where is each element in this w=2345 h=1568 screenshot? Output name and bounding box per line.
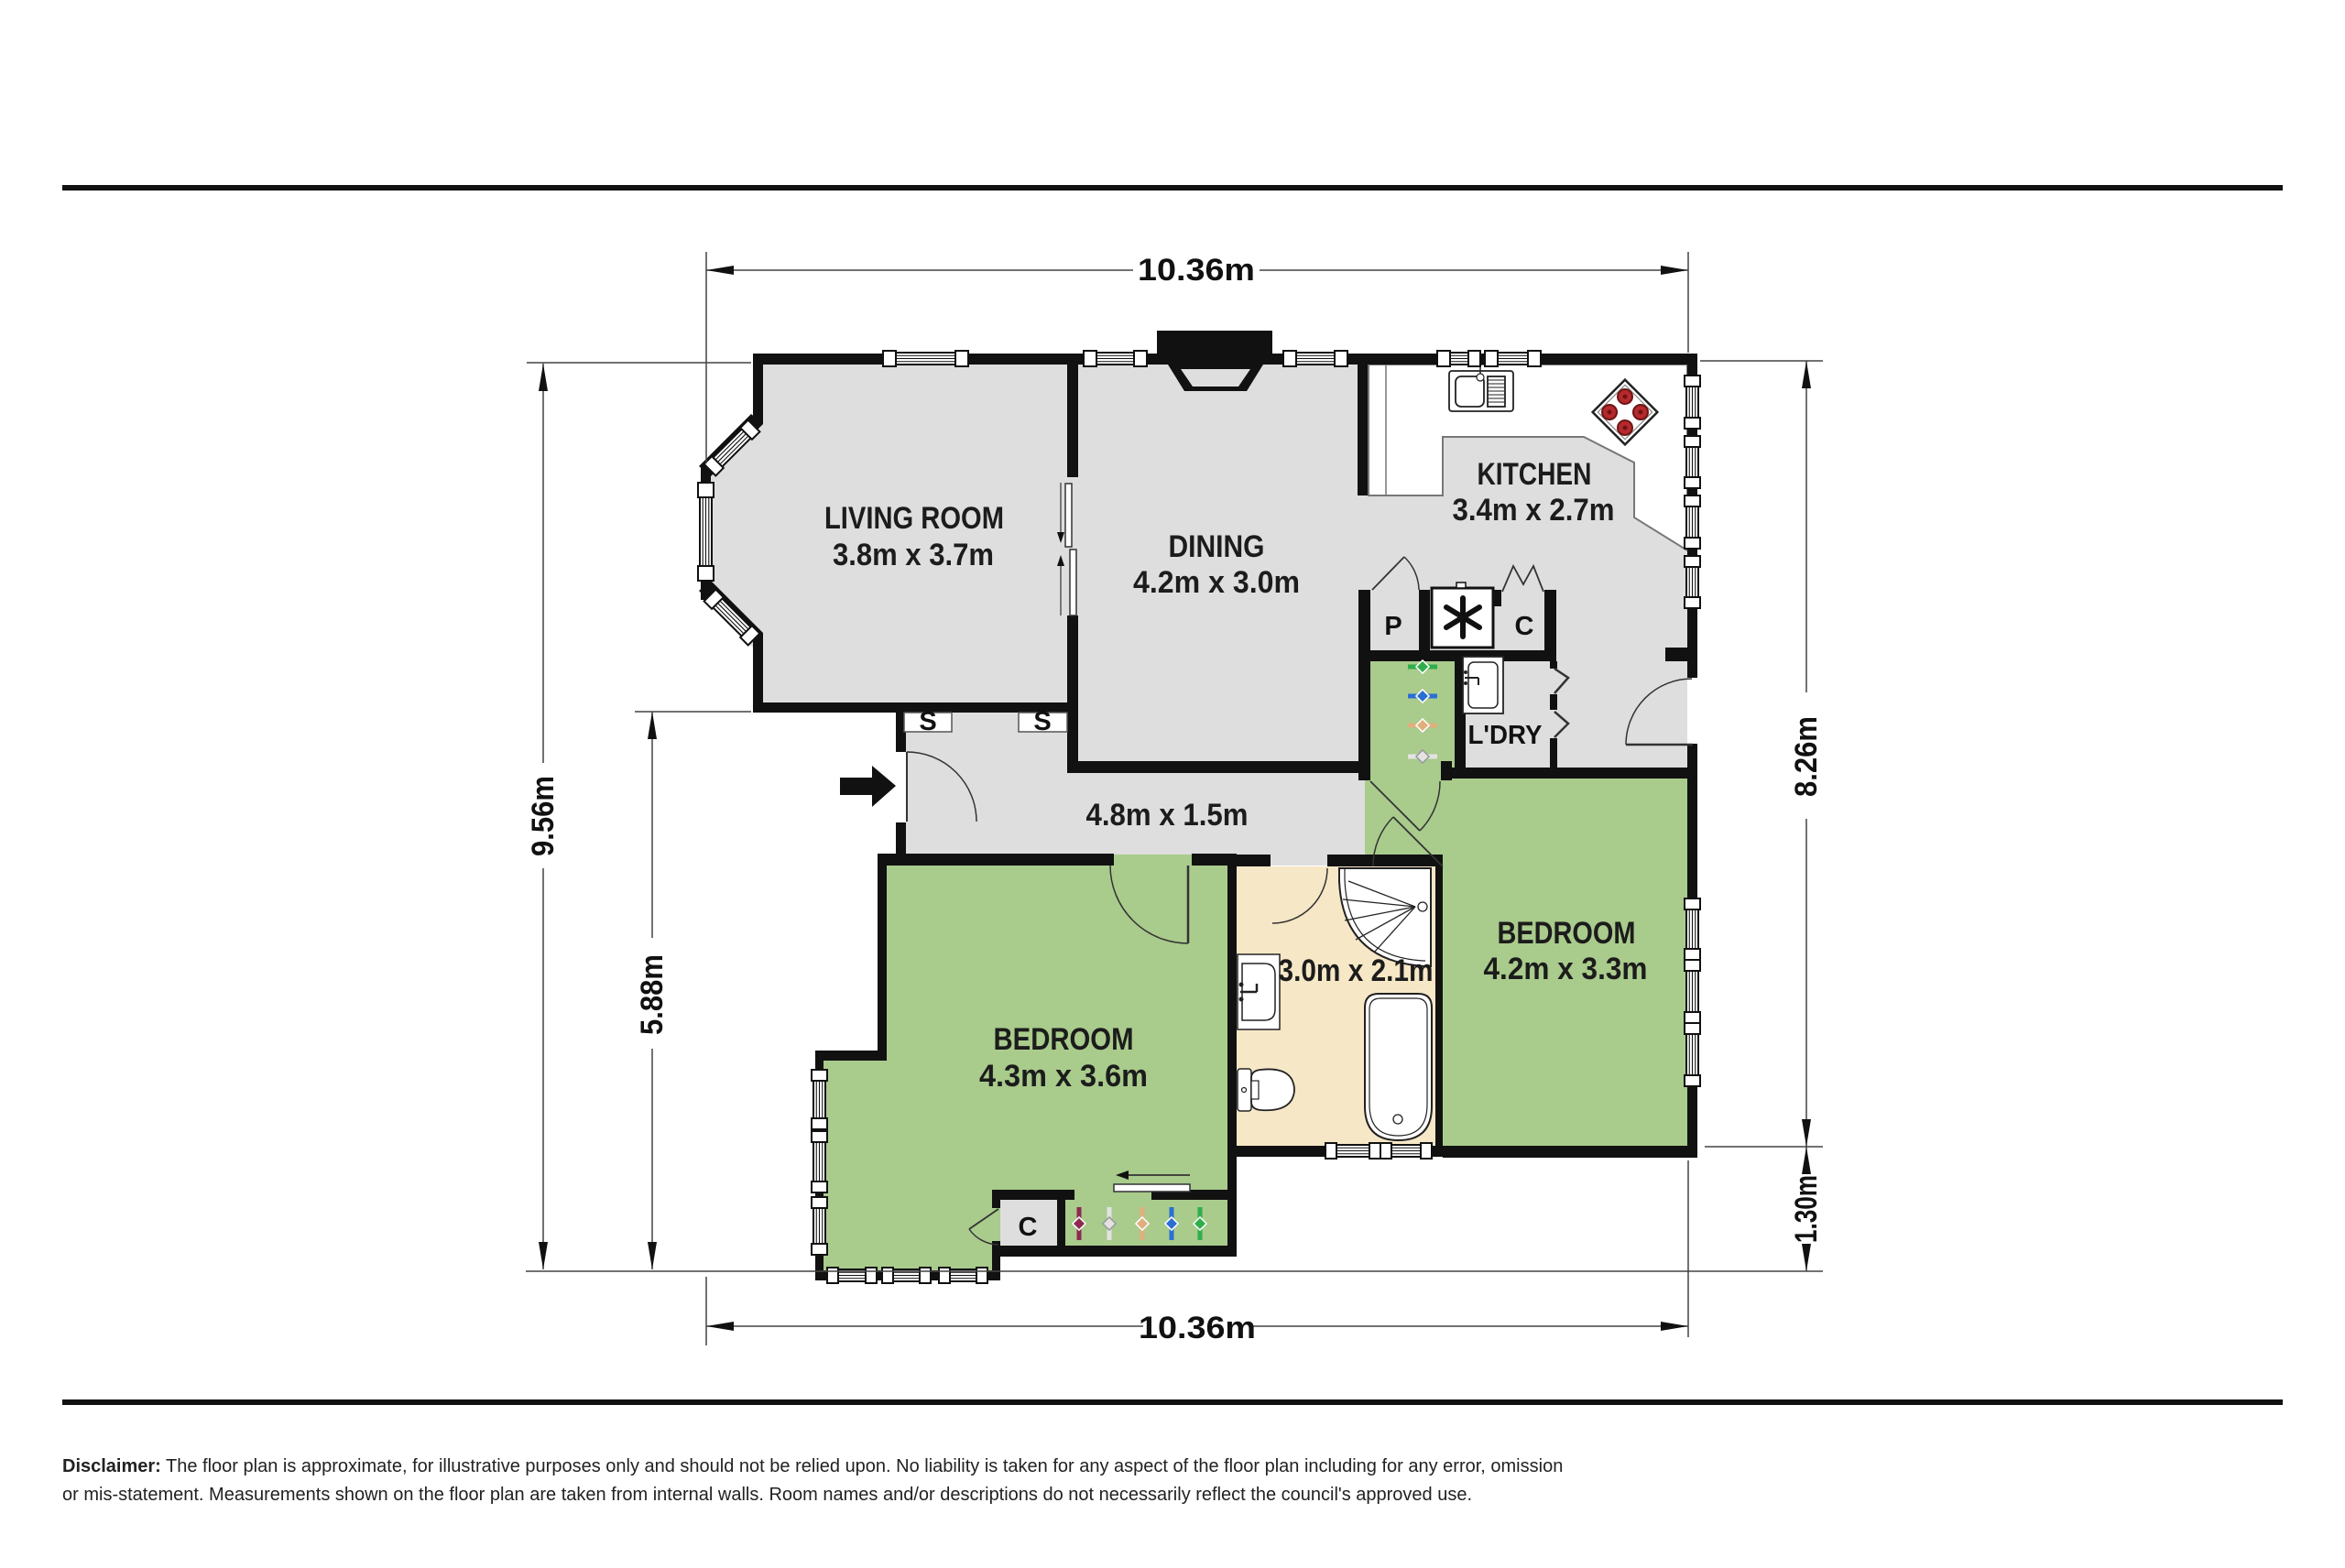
svg-text:5.88m: 5.88m bbox=[635, 954, 670, 1035]
svg-text:LIVING ROOM: LIVING ROOM bbox=[824, 501, 1004, 536]
svg-text:4.3m x 3.6m: 4.3m x 3.6m bbox=[979, 1059, 1148, 1094]
svg-text:4.2m x 3.0m: 4.2m x 3.0m bbox=[1133, 565, 1300, 600]
svg-text:S: S bbox=[1033, 707, 1051, 736]
svg-text:3.0m x 2.1m: 3.0m x 2.1m bbox=[1279, 953, 1434, 988]
svg-text:C: C bbox=[1515, 612, 1534, 641]
svg-text:L'DRY: L'DRY bbox=[1468, 721, 1543, 750]
svg-text:1.30m: 1.30m bbox=[1789, 1175, 1824, 1243]
svg-text:9.56m: 9.56m bbox=[526, 776, 561, 856]
svg-text:BEDROOM: BEDROOM bbox=[994, 1022, 1134, 1057]
svg-text:4.2m x 3.3m: 4.2m x 3.3m bbox=[1484, 952, 1648, 986]
svg-text:3.8m x 3.7m: 3.8m x 3.7m bbox=[833, 538, 994, 572]
svg-text:DINING: DINING bbox=[1169, 529, 1265, 564]
svg-text:KITCHEN: KITCHEN bbox=[1478, 457, 1592, 492]
svg-text:P: P bbox=[1384, 612, 1402, 641]
svg-text:8.26m: 8.26m bbox=[1789, 716, 1824, 797]
svg-text:C: C bbox=[1019, 1213, 1038, 1242]
svg-text:Disclaimer: The floor plan is: Disclaimer: The floor plan is approximat… bbox=[62, 1456, 1563, 1476]
svg-text:4.8m x 1.5m: 4.8m x 1.5m bbox=[1086, 798, 1249, 833]
svg-text:or mis-statement. Measurements: or mis-statement. Measurements shown on … bbox=[62, 1485, 1472, 1505]
svg-text:10.36m: 10.36m bbox=[1138, 253, 1255, 288]
svg-text:BEDROOM: BEDROOM bbox=[1498, 916, 1636, 951]
svg-text:3.4m x 2.7m: 3.4m x 2.7m bbox=[1453, 493, 1615, 528]
svg-text:10.36m: 10.36m bbox=[1139, 1311, 1256, 1345]
svg-text:S: S bbox=[919, 707, 936, 736]
